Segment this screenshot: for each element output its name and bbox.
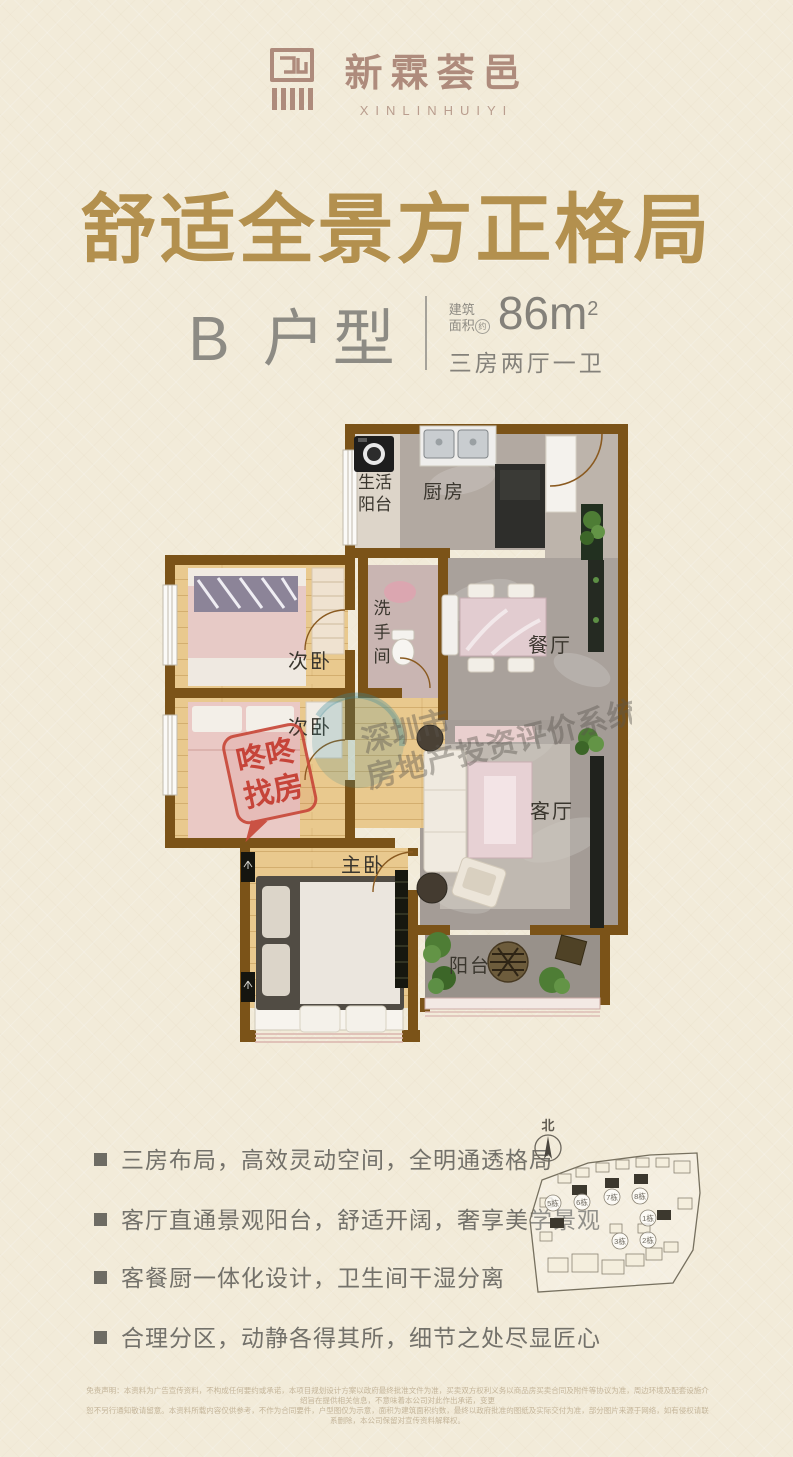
room-label-dining: 餐厅 — [528, 634, 572, 657]
svg-text:5栋: 5栋 — [547, 1198, 559, 1208]
room-label-living: 客厅 — [530, 800, 574, 823]
master-bedroom-furniture — [241, 852, 413, 1032]
svg-text:2栋: 2栋 — [642, 1235, 654, 1245]
svg-text:1栋: 1栋 — [642, 1213, 654, 1223]
room-label-master: 主卧 — [341, 854, 385, 877]
approx-badge: 约 — [475, 319, 490, 334]
disclaimer: 免责声明：本资料为广告宣传资料，不构成任何要约或承诺，本项目规划设计方案以政府最… — [85, 1386, 710, 1426]
compass-icon — [535, 1135, 561, 1161]
floorplan: 生活 阳台 厨房 洗 手 间 次卧 次卧 餐厅 客厅 主卧 阳台 深圳市 房地产… — [162, 420, 632, 1055]
unit-type-label: B 户型 — [188, 288, 403, 378]
feature-item: 合理分区，动静各得其所，细节之处尽显匠心 — [94, 1324, 654, 1352]
poster: 新霖荟邑 XINLINHUIYI 舒适全景方正格局 B 户型 建筑 面积约 86… — [0, 0, 793, 1457]
brand-logo-icon — [264, 44, 330, 116]
room-label-bath-3: 间 — [374, 647, 391, 666]
washing-machine-icon — [354, 436, 394, 472]
bullet-square-icon — [94, 1331, 107, 1344]
area-prefix: 建筑 面积约 — [449, 302, 490, 334]
disclaimer-line2: 恕不另行通知敬请留意。本资料所载内容仅供参考，不作为合同要件，户型图仅为示意，面… — [85, 1406, 710, 1426]
bullet-square-icon — [94, 1153, 107, 1166]
brand-header: 新霖荟邑 XINLINHUIYI — [0, 42, 793, 118]
room-label-bath-2: 手 — [374, 623, 391, 642]
svg-text:7栋: 7栋 — [606, 1192, 618, 1202]
disclaimer-line1: 免责声明：本资料为广告宣传资料，不构成任何要约或承诺，本项目规划设计方案以政府最… — [85, 1386, 710, 1406]
brand-name-cn: 新霖荟邑 — [344, 42, 528, 97]
room-label-kitchen: 厨房 — [423, 481, 465, 503]
north-label: 北 — [541, 1118, 554, 1133]
bullet-square-icon — [94, 1271, 107, 1284]
room-label-laundry-2: 阳台 — [358, 495, 392, 514]
room-label-laundry-1: 生活 — [358, 473, 392, 492]
svg-text:8栋: 8栋 — [634, 1191, 646, 1201]
divider — [425, 296, 427, 370]
svg-text:6栋: 6栋 — [576, 1197, 588, 1207]
unit-info-row: B 户型 建筑 面积约 86m2 三房两厅一卫 — [0, 288, 793, 378]
room-label-bedroom-a: 次卧 — [288, 650, 332, 673]
svg-text:3栋: 3栋 — [614, 1236, 626, 1246]
unit-config: 三房两厅一卫 — [449, 344, 605, 378]
page-title: 舒适全景方正格局 — [0, 168, 793, 278]
room-label-balcony: 阳台 — [449, 955, 491, 977]
room-label-bath-1: 洗 — [374, 599, 391, 618]
bullet-square-icon — [94, 1213, 107, 1226]
brand-name-en: XINLINHUIYI — [360, 103, 514, 118]
site-plan: 北 5栋 6栋 — [518, 1106, 722, 1310]
area-value: 86m2 — [498, 288, 599, 334]
